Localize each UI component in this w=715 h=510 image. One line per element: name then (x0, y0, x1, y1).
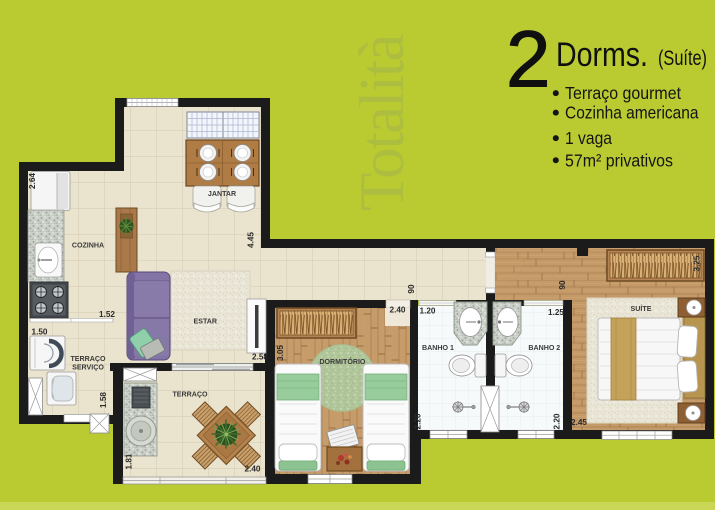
svg-text:90: 90 (407, 284, 416, 294)
svg-text:1.52: 1.52 (99, 310, 115, 319)
svg-text:1.50: 1.50 (32, 328, 48, 337)
svg-text:57m² privativos: 57m² privativos (565, 150, 673, 170)
svg-text:3.05: 3.05 (276, 345, 285, 361)
svg-text:Dorms.: Dorms. (556, 36, 648, 74)
svg-text:TERRAÇO: TERRAÇO (172, 391, 208, 399)
svg-text:1.25: 1.25 (548, 308, 564, 317)
svg-text:4.45: 4.45 (247, 232, 256, 248)
svg-text:2.64: 2.64 (28, 173, 37, 189)
svg-text:BANHO 1: BANHO 1 (422, 344, 454, 352)
svg-text:1.58: 1.58 (99, 392, 108, 408)
svg-text:DORMITÓRIO: DORMITÓRIO (319, 357, 366, 366)
svg-text:2.40: 2.40 (245, 465, 261, 474)
svg-text:2.20: 2.20 (553, 413, 562, 429)
svg-text:1 vaga: 1 vaga (565, 128, 612, 148)
svg-text:2.45: 2.45 (571, 418, 587, 427)
svg-text:2.58: 2.58 (252, 353, 268, 362)
svg-text:SERVIÇO: SERVIÇO (72, 364, 104, 372)
svg-text:JANTAR: JANTAR (208, 190, 236, 198)
svg-text:1.20: 1.20 (420, 307, 436, 316)
svg-text:2.40: 2.40 (390, 306, 406, 315)
svg-text:Cozinha americana: Cozinha americana (565, 103, 699, 123)
svg-text:1.81: 1.81 (125, 453, 134, 469)
svg-text:90: 90 (558, 280, 567, 290)
svg-text:SUÍTE: SUÍTE (631, 304, 652, 313)
svg-text:TERRAÇO: TERRAÇO (70, 355, 106, 363)
svg-text:2: 2 (506, 15, 551, 104)
svg-text:Terraço gourmet: Terraço gourmet (565, 83, 681, 103)
svg-text:Totalità: Totalità (347, 33, 417, 211)
svg-text:3.25: 3.25 (693, 255, 702, 271)
svg-text:2.20: 2.20 (414, 413, 423, 429)
svg-text:BANHO 2: BANHO 2 (528, 344, 560, 352)
svg-text:COZINHA: COZINHA (72, 242, 104, 250)
svg-text:ESTAR: ESTAR (194, 318, 218, 326)
svg-text:(Suíte): (Suíte) (658, 46, 707, 70)
